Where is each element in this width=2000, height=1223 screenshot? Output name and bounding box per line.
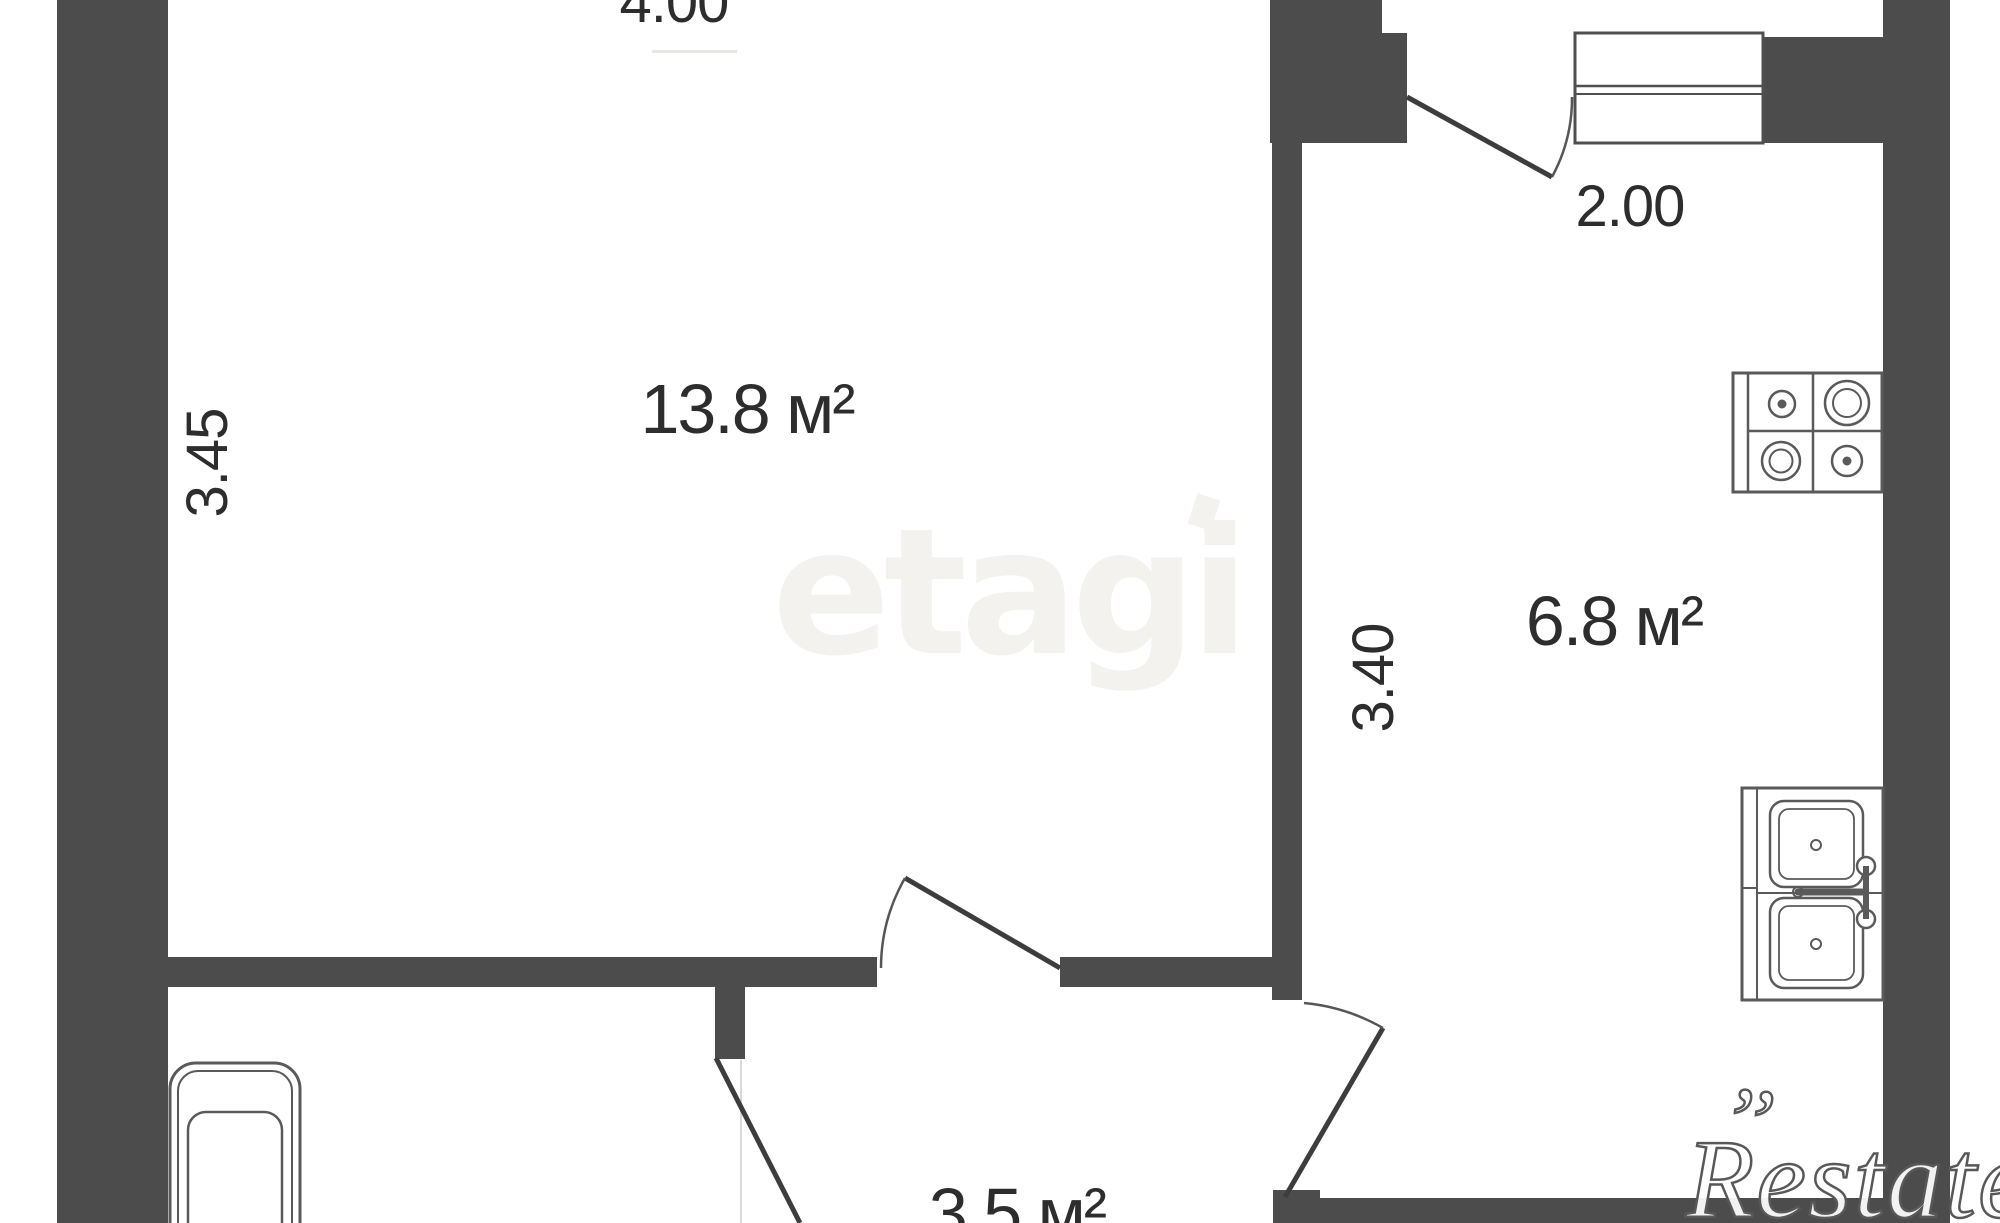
hall-kitchen-door-swing-icon <box>1285 1003 1383 1197</box>
kitchen-door-jamb-step <box>1382 33 1407 143</box>
stove-icon <box>1733 373 1882 492</box>
bathroom-door-swing-icon <box>716 1058 800 1223</box>
dimension-label-living-depth: 3.45 <box>180 363 236 563</box>
cutoff-window-line <box>652 50 737 53</box>
kitchen-bottom-door-jamb <box>1273 1190 1320 1223</box>
dimension-label-kitchen-width: 2.00 <box>1530 178 1730 236</box>
watermark-restate: Restate <box>1686 1116 2000 1223</box>
kitchen-top-wall <box>1763 37 1883 143</box>
dimension-label-living-width: 4.00 <box>574 0 774 32</box>
living-kitchen-divider-wall <box>1272 130 1302 1000</box>
left-exterior-wall <box>57 0 168 1223</box>
hall-top-wall-left <box>168 957 877 987</box>
window-icon <box>1575 33 1763 143</box>
living-room-door-swing-icon <box>881 878 1060 968</box>
right-exterior-wall <box>1883 0 1950 1223</box>
kitchen-top-door-swing-icon <box>1407 97 1572 177</box>
kitchen-door-jamb-block <box>1270 0 1382 143</box>
hall-top-wall-right <box>1060 957 1273 987</box>
bathroom-stub-wall <box>715 987 745 1059</box>
sink-icon <box>1742 788 1883 1000</box>
dimension-label-kitchen-depth: 3.40 <box>1346 578 1402 778</box>
bathtub-icon <box>170 1063 300 1223</box>
area-label-living-room: 13.8 м² <box>597 374 897 444</box>
area-label-hallway: 3.5 м² <box>867 1178 1167 1223</box>
floor-plan-canvas: etagi <box>0 0 2000 1223</box>
area-label-kitchen: 6.8 м² <box>1464 586 1764 656</box>
